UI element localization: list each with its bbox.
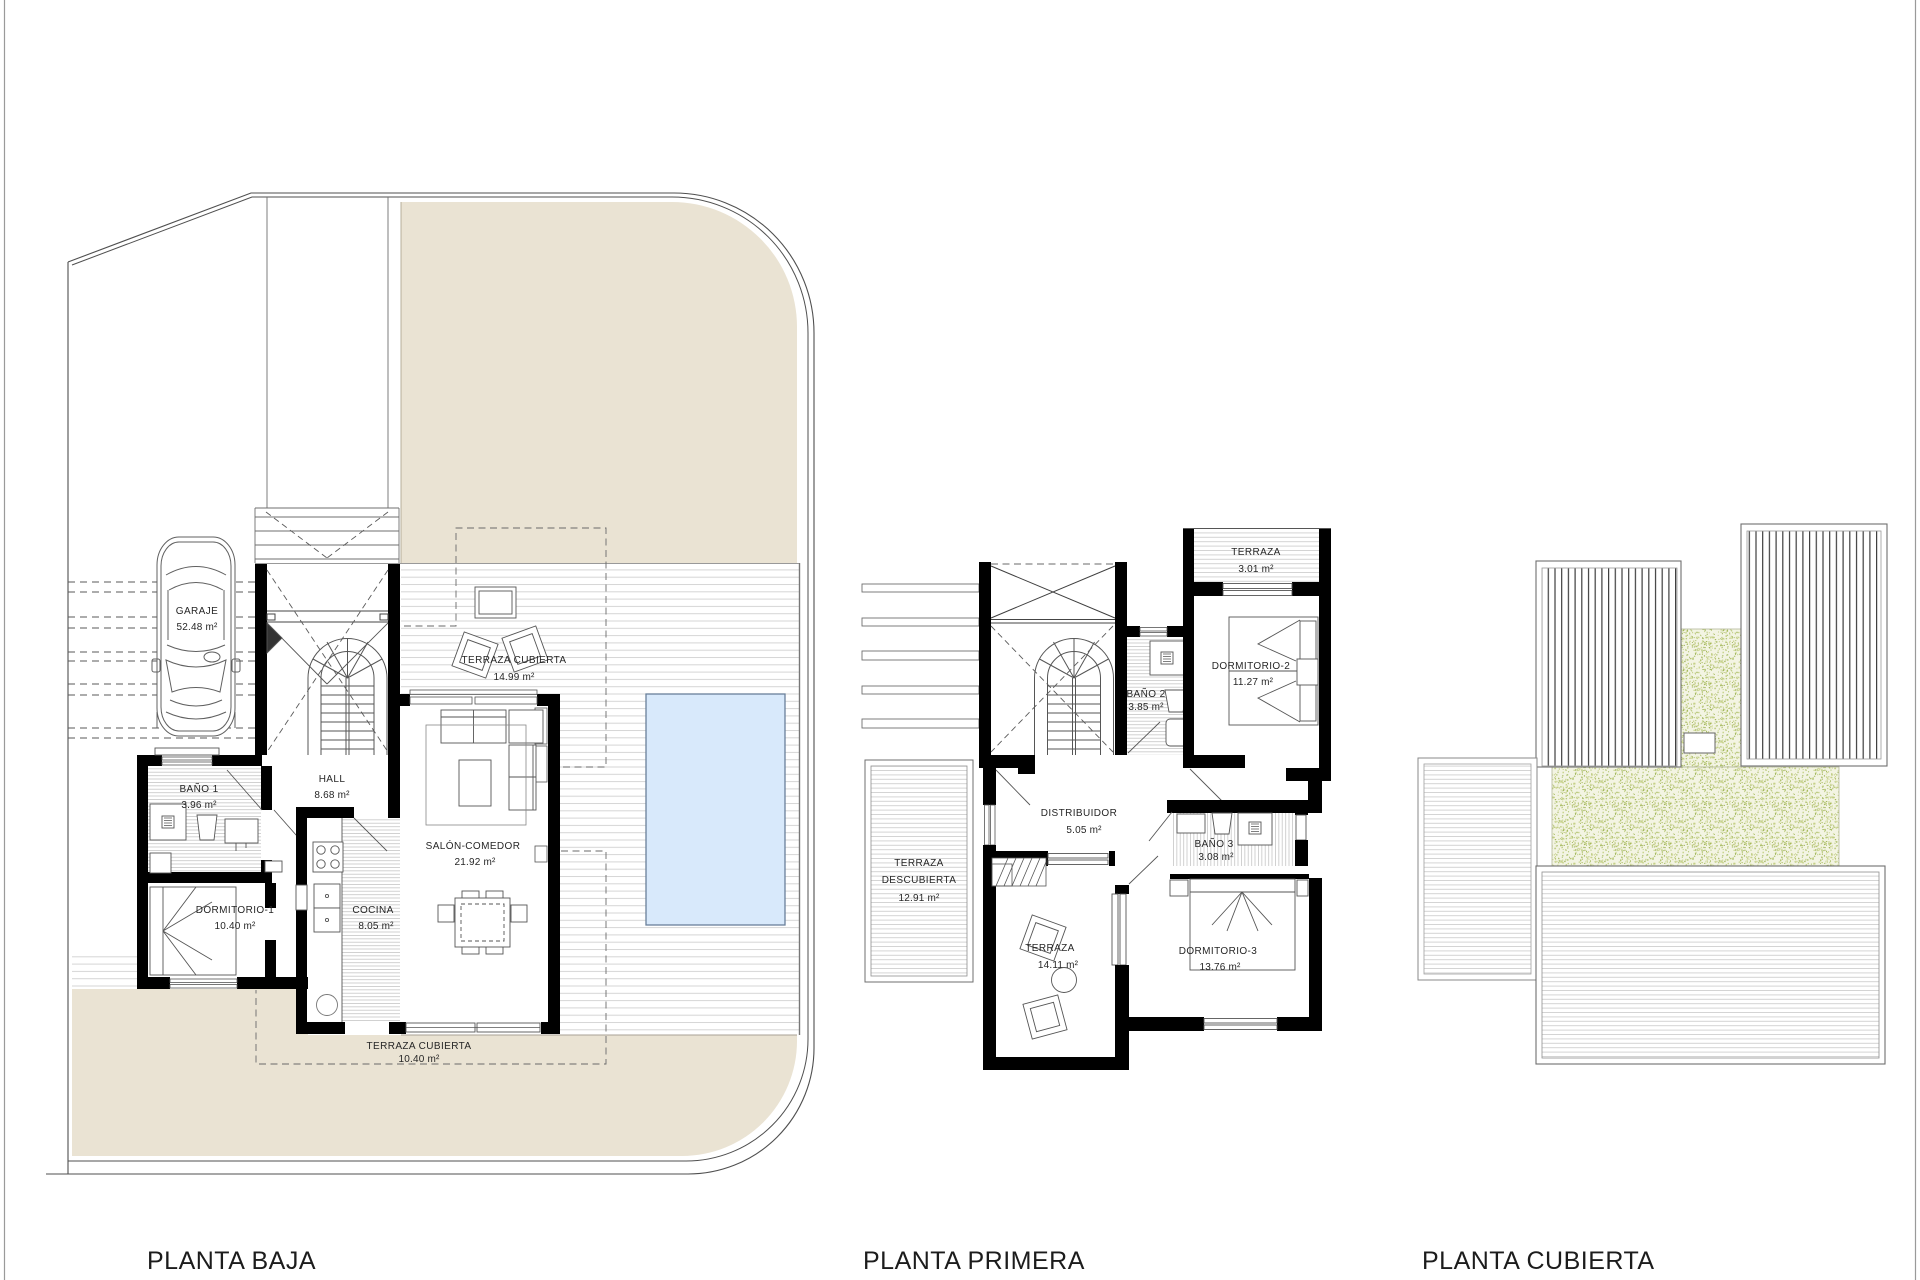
svg-text:8.68 m²: 8.68 m²: [314, 790, 350, 801]
svg-text:HALL: HALL: [319, 774, 346, 785]
svg-text:TERRAZA CUBIERTA: TERRAZA CUBIERTA: [367, 1041, 472, 1052]
svg-text:TERRAZA: TERRAZA: [894, 858, 943, 869]
svg-text:PLANTA CUBIERTA: PLANTA CUBIERTA: [1422, 1247, 1655, 1275]
svg-text:12.91 m²: 12.91 m²: [898, 893, 940, 904]
svg-text:TERRAZA: TERRAZA: [1231, 547, 1280, 558]
svg-text:BAÑO 3: BAÑO 3: [1194, 837, 1233, 850]
svg-text:10.40 m²: 10.40 m²: [214, 921, 256, 932]
svg-text:COCINA: COCINA: [352, 905, 393, 916]
svg-text:3.08 m²: 3.08 m²: [1198, 852, 1234, 863]
svg-text:14.11 m²: 14.11 m²: [1038, 960, 1079, 971]
svg-text:DESCUBIERTA: DESCUBIERTA: [882, 875, 957, 886]
svg-text:GARAJE: GARAJE: [176, 606, 218, 617]
svg-text:14.99 m²: 14.99 m²: [493, 672, 535, 683]
svg-text:3.01 m²: 3.01 m²: [1238, 564, 1274, 575]
svg-text:DORMITORIO-1: DORMITORIO-1: [196, 905, 275, 916]
svg-text:BAÑO 2: BAÑO 2: [1126, 687, 1165, 700]
svg-text:11.27 m²: 11.27 m²: [1233, 677, 1274, 688]
svg-text:DORMITORIO-3: DORMITORIO-3: [1179, 946, 1258, 957]
svg-text:52.48 m²: 52.48 m²: [176, 622, 218, 633]
svg-text:10.40 m²: 10.40 m²: [398, 1054, 440, 1065]
svg-text:PLANTA BAJA: PLANTA BAJA: [147, 1247, 316, 1275]
svg-text:DISTRIBUIDOR: DISTRIBUIDOR: [1041, 808, 1117, 819]
svg-text:BAÑO 1: BAÑO 1: [179, 782, 218, 795]
svg-text:8.05 m²: 8.05 m²: [358, 921, 394, 932]
svg-text:3.85 m²: 3.85 m²: [1128, 702, 1164, 713]
svg-text:PLANTA PRIMERA: PLANTA PRIMERA: [863, 1247, 1085, 1275]
svg-text:TERRAZA: TERRAZA: [1025, 943, 1074, 954]
svg-text:21.92 m²: 21.92 m²: [454, 857, 496, 868]
svg-text:DORMITORIO-2: DORMITORIO-2: [1212, 661, 1291, 672]
svg-text:3.96 m²: 3.96 m²: [181, 800, 217, 811]
svg-text:SALÓN-COMEDOR: SALÓN-COMEDOR: [426, 839, 521, 852]
svg-text:5.05 m²: 5.05 m²: [1066, 825, 1102, 836]
svg-text:13.76 m²: 13.76 m²: [1199, 962, 1241, 973]
svg-text:TERRAZA CUBIERTA: TERRAZA CUBIERTA: [462, 655, 567, 666]
